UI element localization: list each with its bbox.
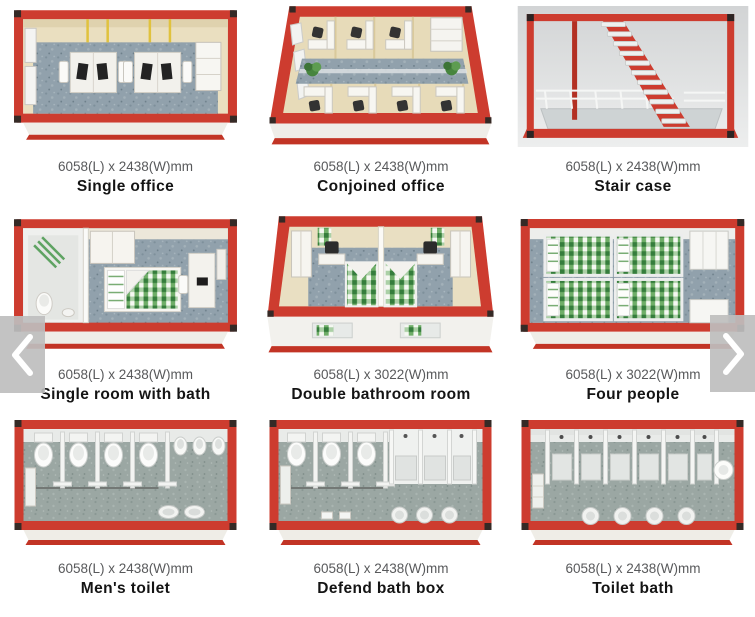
tile-toilet-bath: 6058(L) x 2438(W)mm Toilet bath	[511, 410, 755, 617]
product-dimensions: 6058(L) x 2438(W)mm	[40, 366, 210, 383]
product-name: Stair case	[565, 177, 700, 197]
product-dimensions: 6058(L) x 2438(W)mm	[58, 560, 193, 577]
single-office-illustration	[8, 6, 244, 152]
product-name: Single office	[58, 177, 193, 197]
tile-mens-toilet: 6058(L) x 2438(W)mm Men's toilet	[0, 410, 251, 617]
chevron-right-icon	[720, 332, 746, 376]
defend-bath-box-image	[258, 416, 504, 556]
tile-stair-case: 6058(L) x 2438(W)mm Stair case	[511, 0, 755, 206]
product-name: Double bathroom room	[291, 385, 470, 405]
product-dimensions: 6058(L) x 2438(W)mm	[58, 158, 193, 175]
chevron-left-icon	[10, 333, 36, 377]
toilet-bath-image	[514, 416, 752, 556]
single-office-image	[8, 4, 244, 154]
product-dimensions: 6058(L) x 3022(W)mm	[291, 366, 470, 383]
toilet-bath-illustration	[514, 416, 752, 556]
defend-bath-box-illustration	[258, 416, 504, 556]
carousel-next-button[interactable]	[710, 315, 755, 392]
product-name: Four people	[565, 385, 700, 405]
mens-toilet-illustration	[8, 416, 244, 556]
product-dimensions: 6058(L) x 2438(W)mm	[313, 158, 448, 175]
product-name: Conjoined office	[313, 177, 448, 197]
tile-double-bathroom-room: 6058(L) x 3022(W)mm Double bathroom room	[251, 206, 511, 410]
product-dimensions: 6058(L) x 3022(W)mm	[565, 366, 700, 383]
conjoined-office-image	[258, 4, 504, 154]
mens-toilet-image	[8, 416, 244, 556]
product-dimensions: 6058(L) x 2438(W)mm	[313, 560, 448, 577]
stair-case-image	[514, 4, 752, 154]
stair-case-illustration	[514, 6, 752, 152]
product-name: Single room with bath	[40, 385, 210, 405]
tile-single-office: 6058(L) x 2438(W)mm Single office	[0, 0, 251, 206]
product-dimensions: 6058(L) x 2438(W)mm	[565, 560, 700, 577]
tile-defend-bath-box: 6058(L) x 2438(W)mm Defend bath box	[251, 410, 511, 617]
product-grid: 6058(L) x 2438(W)mm Single office	[0, 0, 755, 617]
double-bathroom-room-image	[258, 214, 504, 362]
conjoined-office-illustration	[258, 4, 504, 154]
double-bathroom-room-illustration	[258, 214, 504, 362]
product-name: Defend bath box	[313, 579, 448, 599]
product-gallery: 6058(L) x 2438(W)mm Single office	[0, 0, 755, 617]
product-name: Men's toilet	[58, 579, 193, 599]
tile-conjoined-office: 6058(L) x 2438(W)mm Conjoined office	[251, 0, 511, 206]
carousel-prev-button[interactable]	[0, 316, 45, 393]
product-name: Toilet bath	[565, 579, 700, 599]
product-dimensions: 6058(L) x 2438(W)mm	[565, 158, 700, 175]
